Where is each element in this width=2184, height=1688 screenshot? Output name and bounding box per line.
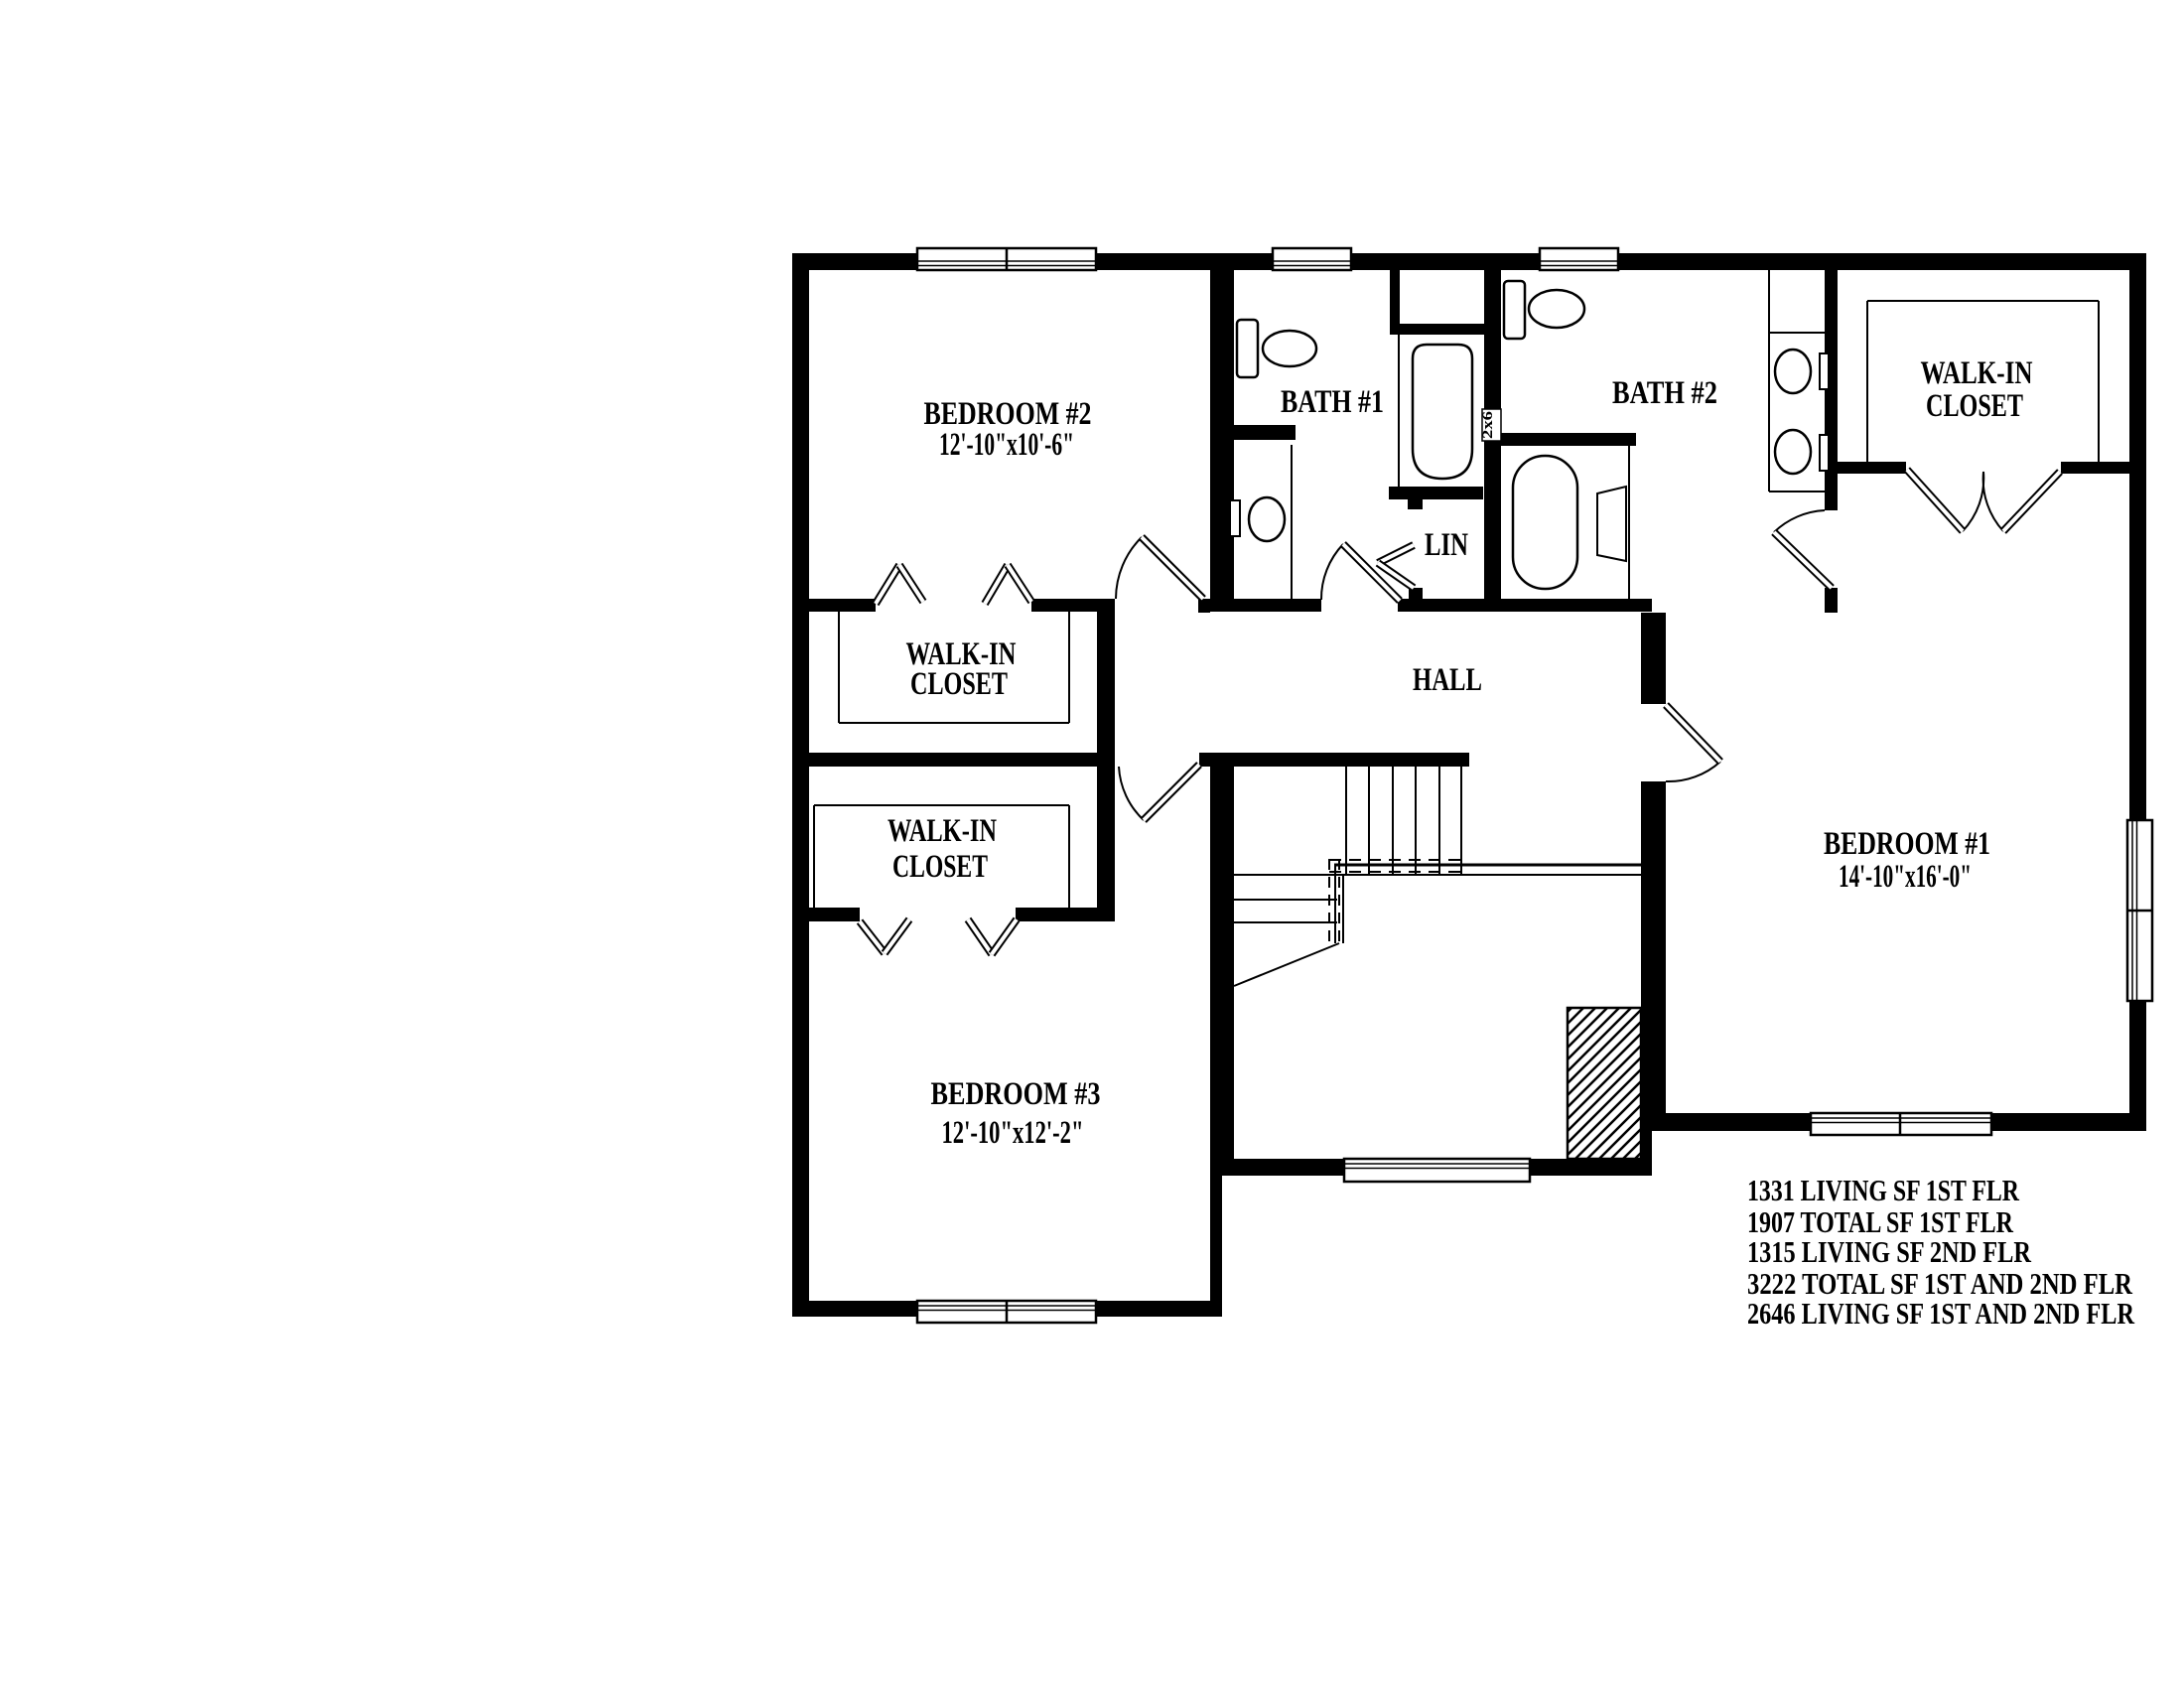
svg-text:HALL: HALL (1413, 662, 1482, 698)
svg-text:12'-10"x12'-2": 12'-10"x12'-2" (942, 1115, 1084, 1151)
svg-text:LIN: LIN (1425, 527, 1468, 563)
svg-text:CLOSET: CLOSET (892, 849, 988, 885)
svg-text:BATH #1: BATH #1 (1281, 384, 1384, 420)
svg-text:1315 LIVING SF 2ND FLR: 1315 LIVING SF 2ND FLR (1747, 1234, 2031, 1269)
svg-text:2x6: 2x6 (1480, 410, 1496, 439)
svg-text:14'-10"x16'-0": 14'-10"x16'-0" (1839, 859, 1972, 895)
svg-text:CLOSET: CLOSET (1926, 388, 2023, 424)
svg-text:12'-10"x10'-6": 12'-10"x10'-6" (939, 427, 1074, 463)
svg-text:BATH #2: BATH #2 (1612, 375, 1717, 411)
svg-text:1331 LIVING SF 1ST FLR: 1331 LIVING SF 1ST FLR (1747, 1173, 2019, 1207)
svg-text:BEDROOM #3: BEDROOM #3 (931, 1076, 1101, 1112)
svg-text:CLOSET: CLOSET (910, 666, 1008, 702)
svg-text:BEDROOM #1: BEDROOM #1 (1824, 826, 1990, 862)
svg-text:WALK-IN: WALK-IN (887, 813, 997, 849)
svg-text:2646 LIVING SF 1ST AND 2ND FLR: 2646 LIVING SF 1ST AND 2ND FLR (1747, 1296, 2134, 1331)
svg-text:WALK-IN: WALK-IN (1921, 355, 2033, 391)
